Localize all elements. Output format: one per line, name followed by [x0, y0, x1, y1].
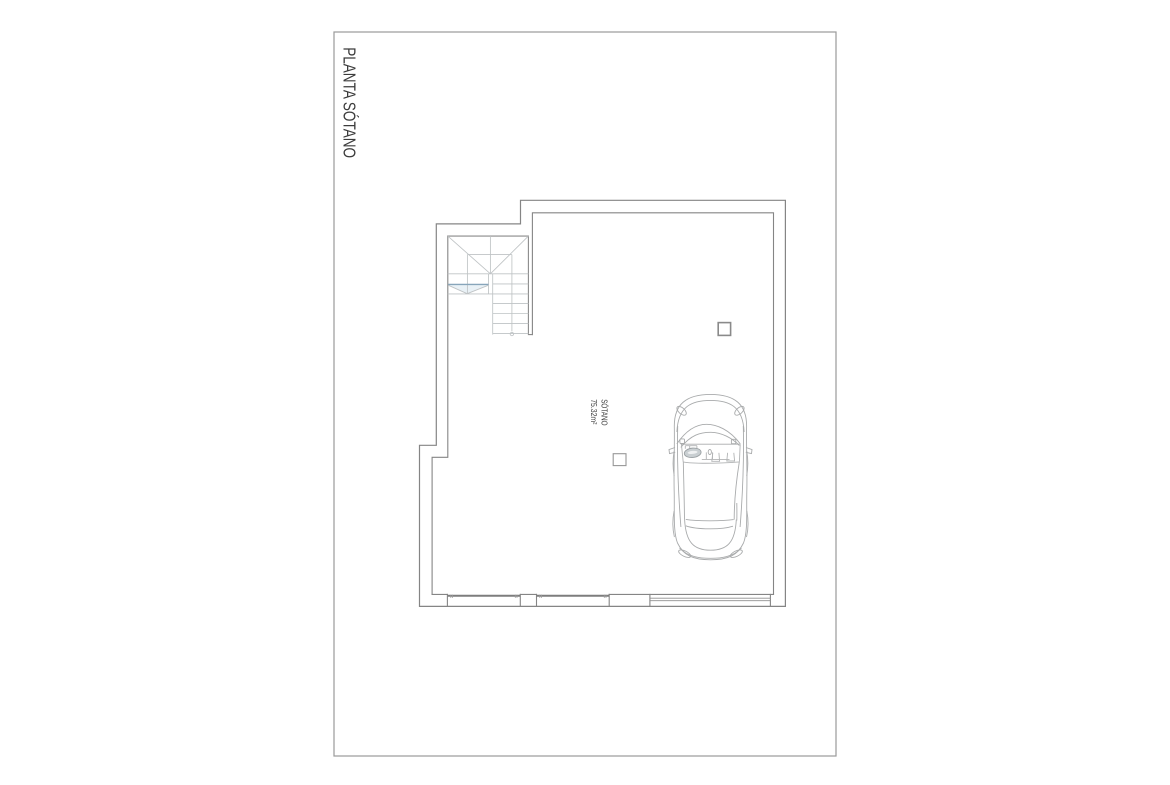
svg-text:PLANTA SÓTANO: PLANTA SÓTANO	[340, 47, 361, 158]
svg-text:75.32m²: 75.32m²	[589, 399, 599, 424]
svg-text:SÓTANO: SÓTANO	[600, 399, 610, 426]
